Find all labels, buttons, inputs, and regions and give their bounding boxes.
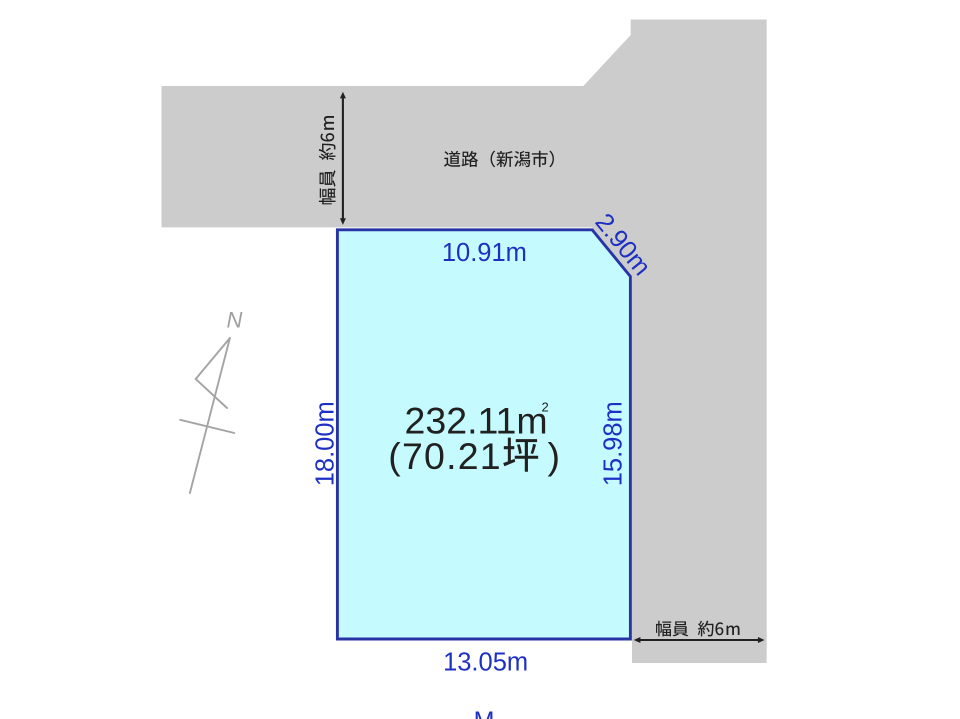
svg-text:15.98m: 15.98m <box>600 401 628 486</box>
svg-text:N: N <box>227 308 243 333</box>
svg-text:13.05m: 13.05m <box>443 649 528 677</box>
svg-text:18.00m: 18.00m <box>312 401 340 486</box>
svg-text:2: 2 <box>542 400 549 415</box>
svg-text:10.91m: 10.91m <box>442 239 527 267</box>
svg-text:(70.21: (70.21 <box>388 435 502 477</box>
svg-text:M: M <box>474 707 495 719</box>
svg-text:): ) <box>548 435 561 477</box>
